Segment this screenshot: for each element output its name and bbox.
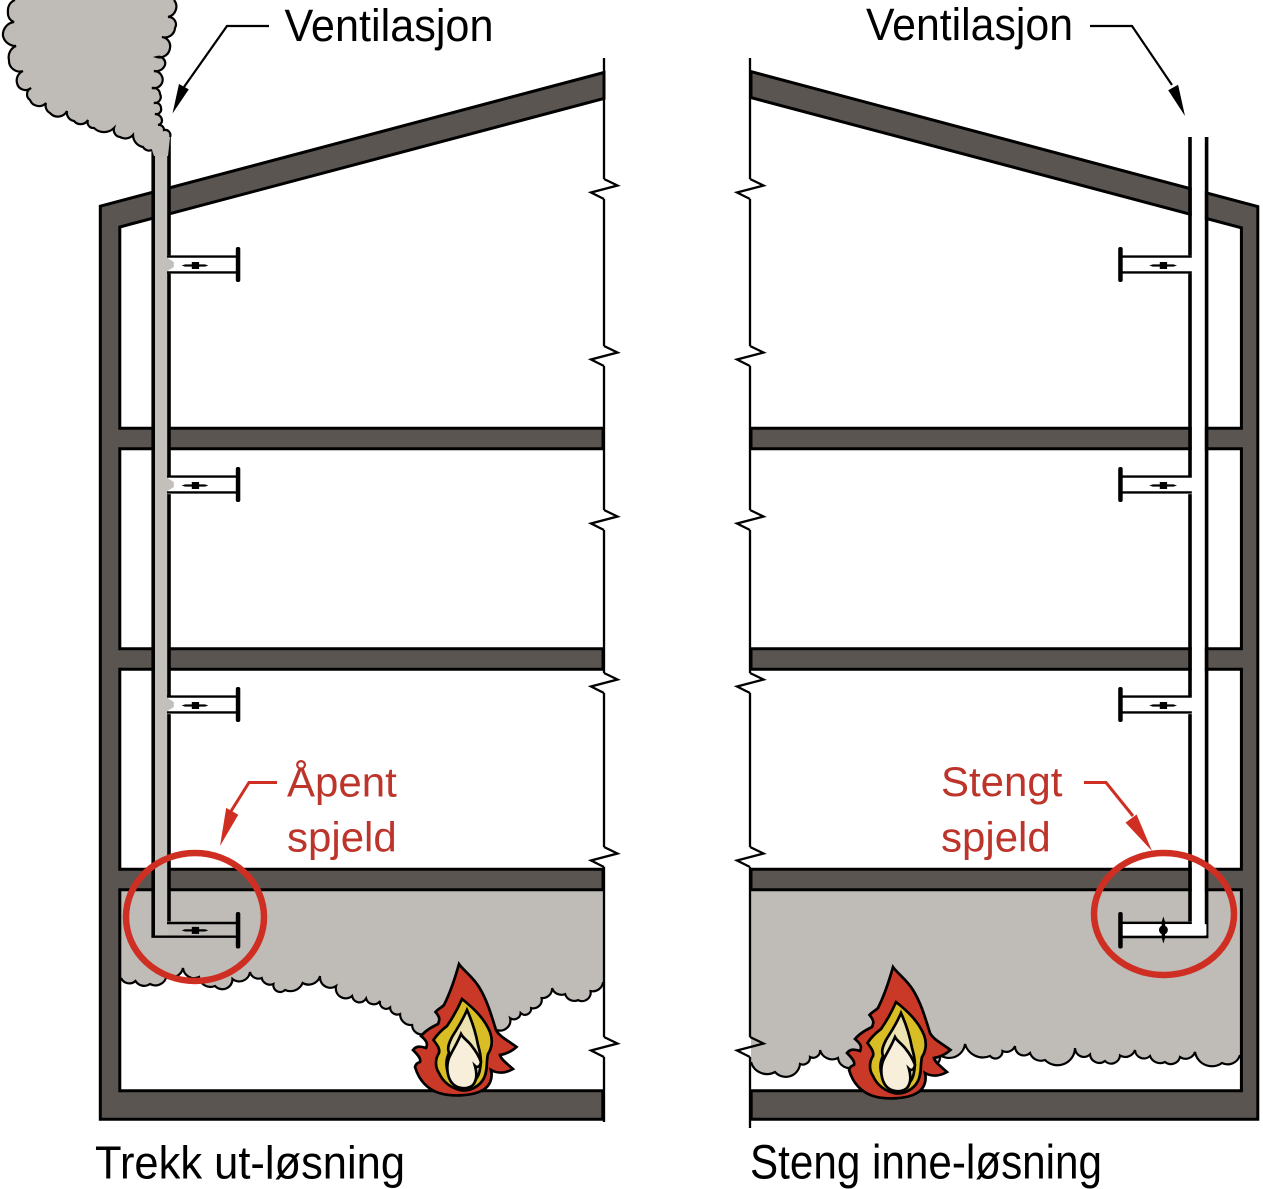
svg-text:Åpent: Åpent <box>287 759 397 806</box>
svg-text:Trekk ut-løsning: Trekk ut-løsning <box>95 1137 405 1189</box>
svg-text:Stengt: Stengt <box>941 758 1063 805</box>
svg-text:spjeld: spjeld <box>941 814 1051 861</box>
svg-text:spjeld: spjeld <box>287 814 397 861</box>
svg-text:Steng inne-løsning: Steng inne-løsning <box>750 1137 1102 1189</box>
svg-text:Ventilasjon: Ventilasjon <box>866 0 1073 50</box>
svg-text:Ventilasjon: Ventilasjon <box>285 0 494 51</box>
